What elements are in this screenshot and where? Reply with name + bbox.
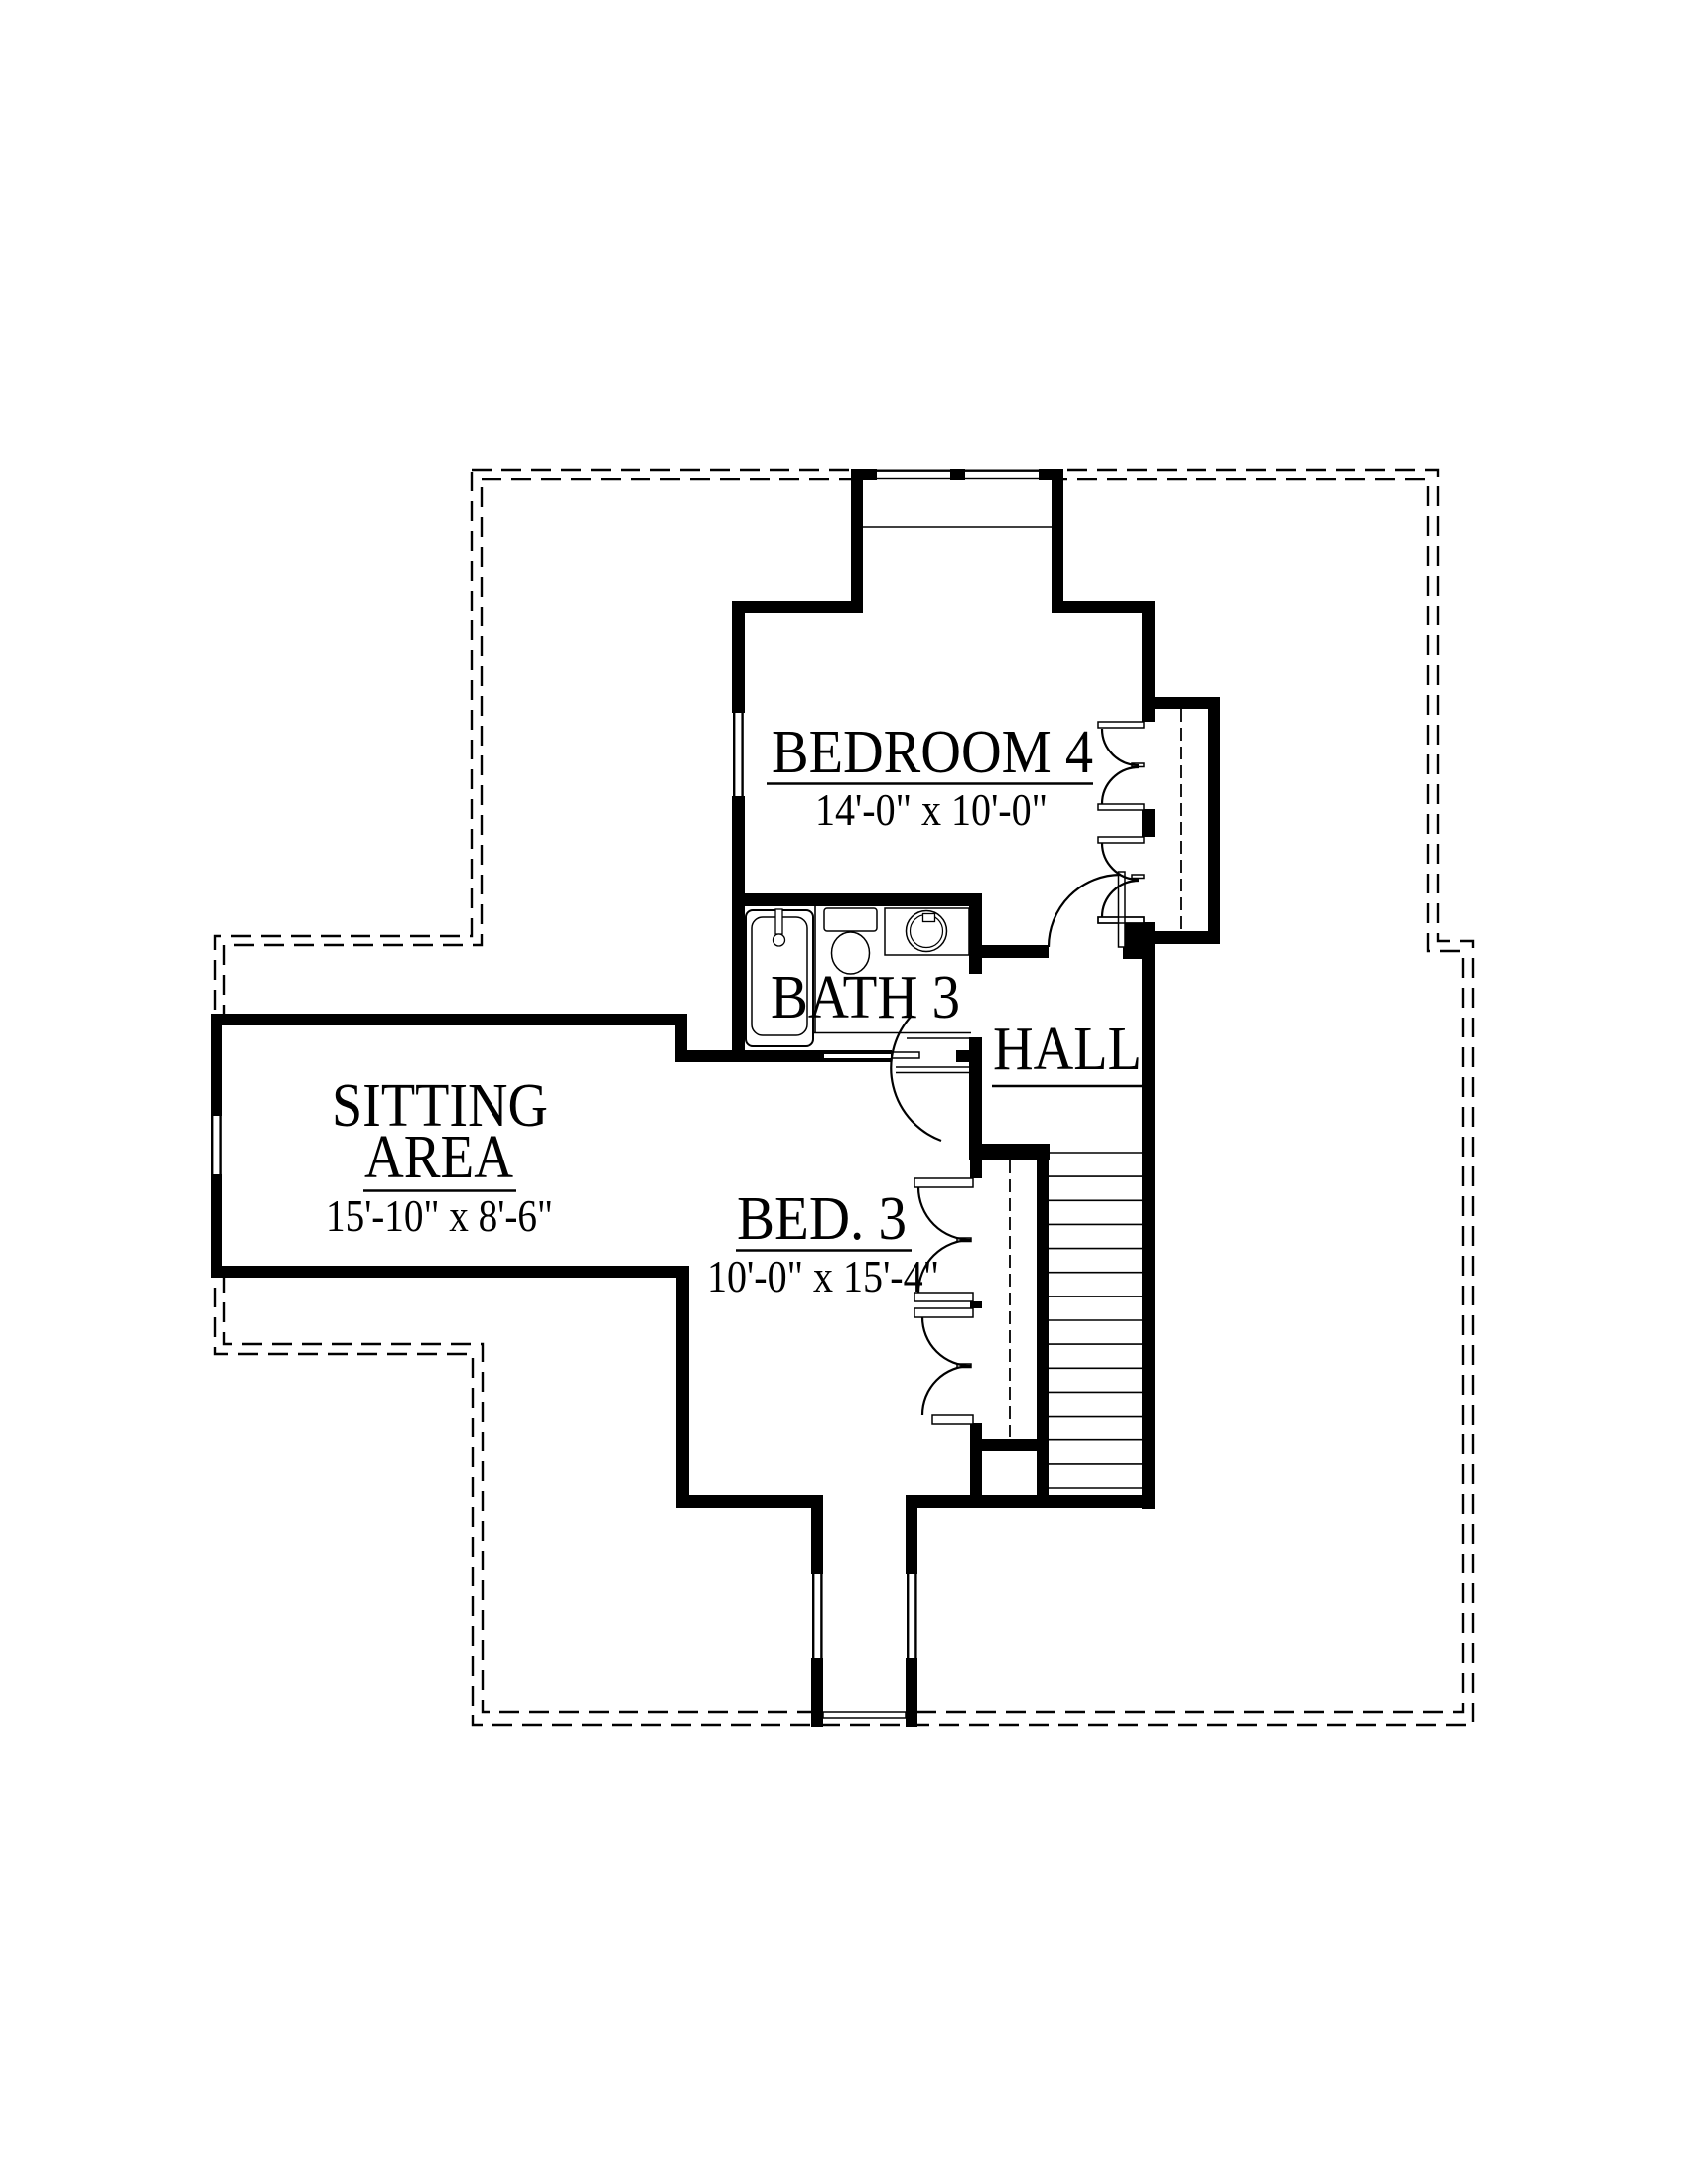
svg-text:AREA: AREA bbox=[364, 1124, 513, 1191]
svg-text:BEDROOM 4: BEDROOM 4 bbox=[772, 719, 1093, 786]
svg-text:BED. 3: BED. 3 bbox=[737, 1185, 907, 1253]
svg-text:HALL: HALL bbox=[993, 1016, 1142, 1083]
svg-text:15'-10" x 8'-6": 15'-10" x 8'-6" bbox=[326, 1191, 553, 1241]
svg-text:10'-0" x 15'-4": 10'-0" x 15'-4" bbox=[707, 1252, 939, 1301]
svg-text:14'-0" x 10'-0": 14'-0" x 10'-0" bbox=[815, 785, 1048, 835]
svg-text:BATH 3: BATH 3 bbox=[771, 964, 960, 1031]
